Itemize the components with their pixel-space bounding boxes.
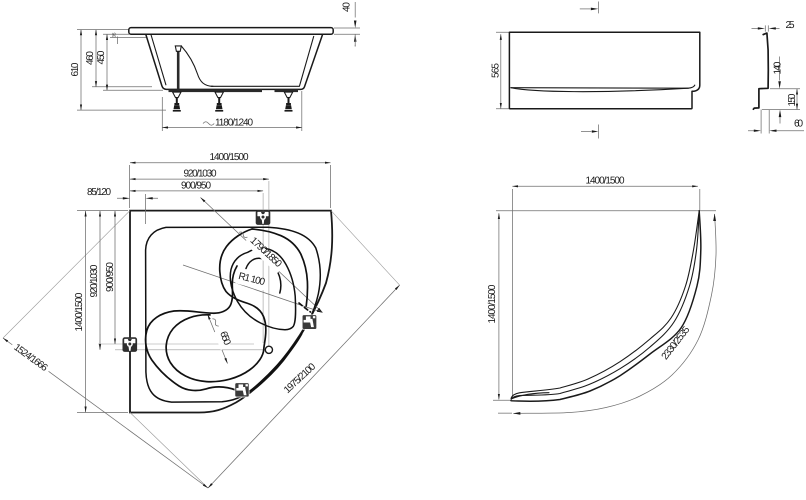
svg-text:140: 140 <box>773 61 784 74</box>
svg-text:1400/1500: 1400/1500 <box>586 176 625 187</box>
svg-text:150: 150 <box>787 93 798 106</box>
svg-text:1180/1240: 1180/1240 <box>215 117 253 128</box>
svg-text:1400/1500: 1400/1500 <box>74 292 85 331</box>
svg-text:900/950: 900/950 <box>105 262 116 292</box>
svg-text:900/950: 900/950 <box>181 181 211 192</box>
svg-text:85/120: 85/120 <box>87 187 111 198</box>
svg-text:25: 25 <box>786 20 795 31</box>
svg-text:40: 40 <box>341 2 352 12</box>
svg-text:610: 610 <box>70 62 81 76</box>
svg-text:920/1030: 920/1030 <box>184 169 217 180</box>
svg-text:450: 450 <box>96 50 107 64</box>
svg-text:1524/1666: 1524/1666 <box>11 342 49 374</box>
svg-text:920/1030: 920/1030 <box>89 264 100 297</box>
svg-text:565: 565 <box>491 63 502 78</box>
svg-text:1400/1500: 1400/1500 <box>210 152 249 163</box>
svg-text:60: 60 <box>794 119 803 130</box>
svg-text:35: 35 <box>112 32 117 38</box>
svg-text:460: 460 <box>85 51 96 65</box>
svg-text:1400/1500: 1400/1500 <box>487 284 498 323</box>
